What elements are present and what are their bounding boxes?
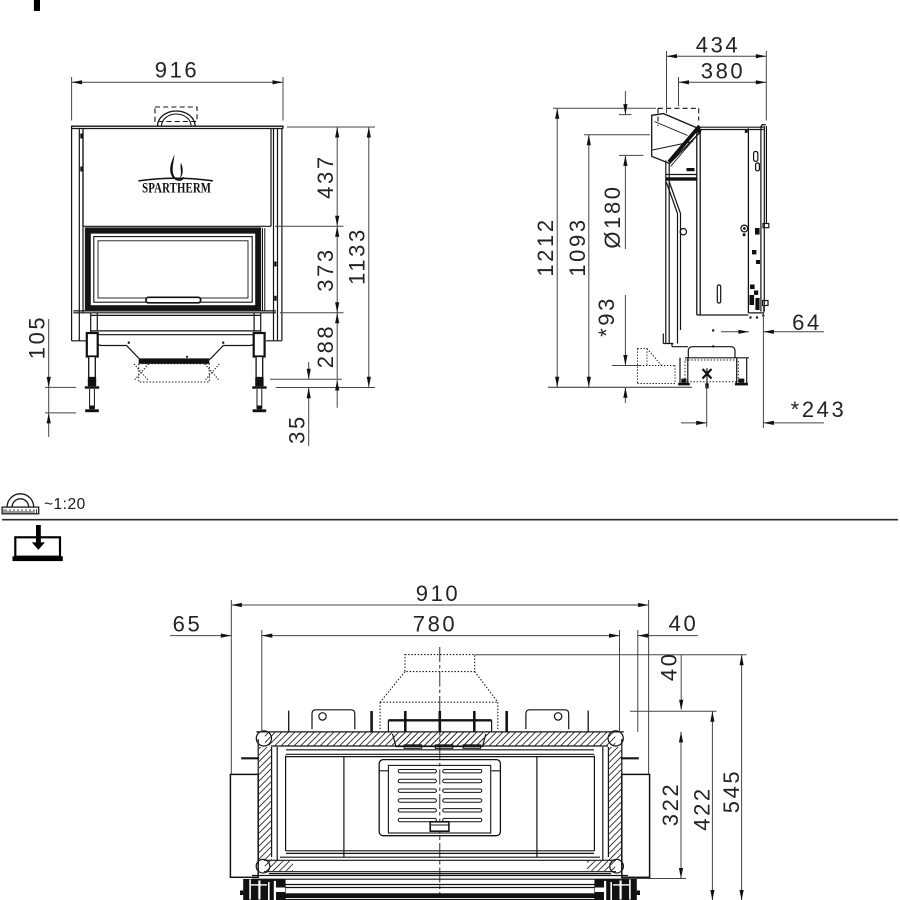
svg-text:Ø180: Ø180 — [600, 184, 625, 248]
svg-text:288: 288 — [313, 324, 338, 369]
svg-text:*243: *243 — [791, 397, 847, 422]
svg-text:~1:20: ~1:20 — [44, 496, 86, 513]
svg-text:422: 422 — [690, 786, 715, 831]
svg-text:373: 373 — [313, 247, 338, 292]
svg-text:1093: 1093 — [565, 217, 590, 276]
svg-text:437: 437 — [313, 154, 338, 199]
svg-text:322: 322 — [658, 782, 683, 827]
svg-text:105: 105 — [25, 315, 50, 360]
svg-text:35: 35 — [285, 414, 310, 444]
svg-text:910: 910 — [416, 581, 461, 606]
svg-text:780: 780 — [413, 612, 458, 637]
svg-text:65: 65 — [173, 612, 203, 637]
svg-text:545: 545 — [719, 769, 744, 814]
svg-text:40: 40 — [657, 651, 682, 681]
svg-text:434: 434 — [696, 33, 741, 58]
svg-text:916: 916 — [155, 58, 200, 83]
svg-text:1133: 1133 — [345, 227, 370, 285]
svg-text:SPARTHERM: SPARTHERM — [142, 179, 211, 196]
svg-text:40: 40 — [669, 611, 699, 636]
svg-text:64: 64 — [792, 310, 822, 335]
svg-text:*93: *93 — [594, 296, 619, 337]
svg-text:1212: 1212 — [533, 217, 558, 276]
svg-text:380: 380 — [701, 59, 746, 84]
